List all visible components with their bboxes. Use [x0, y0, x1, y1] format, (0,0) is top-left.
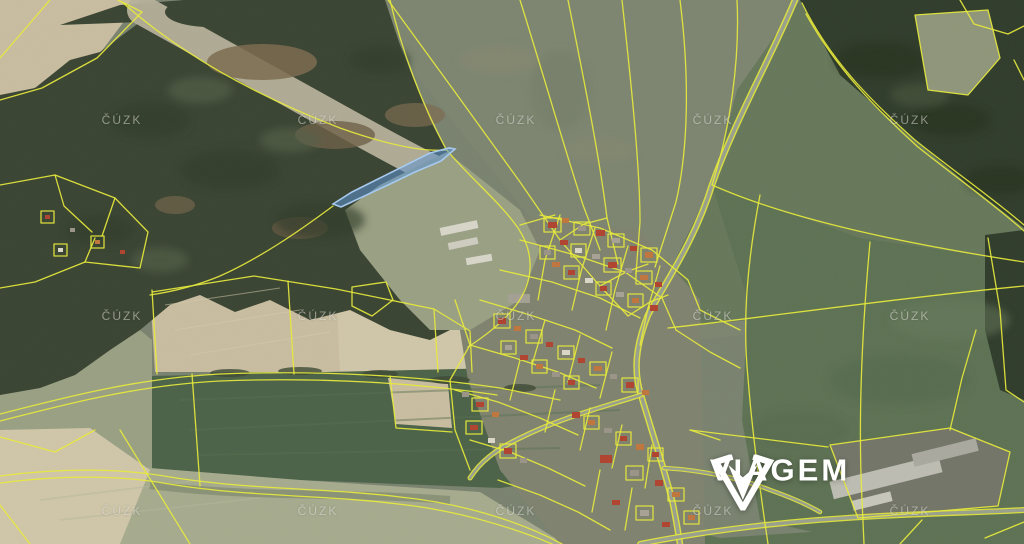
cuzk-watermark: ČÚZK [102, 504, 143, 518]
building [612, 238, 620, 243]
building [592, 254, 600, 259]
building [652, 452, 659, 457]
building [650, 305, 658, 311]
building [575, 248, 582, 253]
building [578, 226, 586, 231]
building [585, 278, 593, 283]
cuzk-watermark: ČÚZK [496, 504, 537, 518]
building [620, 436, 627, 441]
building [588, 420, 595, 425]
building [630, 246, 637, 251]
building [578, 358, 585, 363]
cuzk-watermark: ČÚZK [496, 309, 537, 323]
building [488, 438, 495, 443]
satellite-imagery [0, 0, 1024, 544]
building [604, 428, 612, 433]
building [120, 250, 125, 254]
cuzk-watermark: ČÚZK [890, 504, 931, 518]
building [548, 222, 557, 228]
building [608, 262, 617, 268]
building [630, 470, 639, 476]
building [568, 380, 575, 385]
building [594, 366, 602, 371]
building [514, 326, 521, 331]
cuzk-watermark: ČÚZK [298, 309, 339, 323]
building [560, 240, 568, 245]
building [470, 425, 478, 430]
building [530, 334, 538, 339]
building [655, 480, 663, 486]
building [95, 240, 100, 244]
building [544, 250, 551, 255]
building [625, 268, 632, 273]
map-viewport[interactable]: ČÚZKČÚZKČÚZKČÚZKČÚZKČÚZKČÚZKČÚZKČÚZKČÚZK… [0, 0, 1024, 544]
building [600, 455, 612, 463]
cuzk-watermark: ČÚZK [693, 113, 734, 127]
terrain-layer [0, 0, 1024, 544]
building [45, 215, 50, 219]
building [520, 355, 528, 360]
building [662, 522, 670, 527]
building [612, 500, 620, 505]
building [476, 402, 484, 407]
building [640, 510, 649, 516]
cuzk-watermark: ČÚZK [298, 504, 339, 518]
building [546, 342, 553, 347]
building [626, 382, 634, 388]
building [636, 444, 644, 450]
building [640, 275, 648, 280]
building [632, 298, 639, 303]
building [505, 345, 512, 350]
building [568, 270, 575, 275]
building [645, 252, 653, 258]
cuzk-watermark: ČÚZK [890, 309, 931, 323]
viagem-logo: VIAGEM [710, 455, 850, 486]
building [610, 374, 617, 379]
building [655, 282, 662, 287]
building [672, 492, 680, 497]
building [492, 412, 499, 417]
building [616, 292, 624, 297]
building [562, 350, 570, 355]
building [562, 218, 569, 223]
building [70, 228, 75, 232]
building [462, 392, 469, 397]
building [552, 262, 560, 267]
cuzk-watermark: ČÚZK [693, 309, 734, 323]
building [504, 448, 512, 454]
building [552, 372, 560, 377]
building [520, 458, 527, 463]
building [642, 390, 649, 395]
cuzk-watermark: ČÚZK [102, 309, 143, 323]
building [536, 364, 543, 369]
cuzk-watermark: ČÚZK [102, 113, 143, 127]
cuzk-watermark: ČÚZK [496, 113, 537, 127]
building [572, 412, 580, 418]
building [58, 248, 63, 252]
building [596, 230, 605, 236]
cuzk-watermark: ČÚZK [890, 113, 931, 127]
viagem-gem-icon [710, 455, 776, 511]
cuzk-watermark: ČÚZK [298, 113, 339, 127]
building [600, 286, 607, 291]
